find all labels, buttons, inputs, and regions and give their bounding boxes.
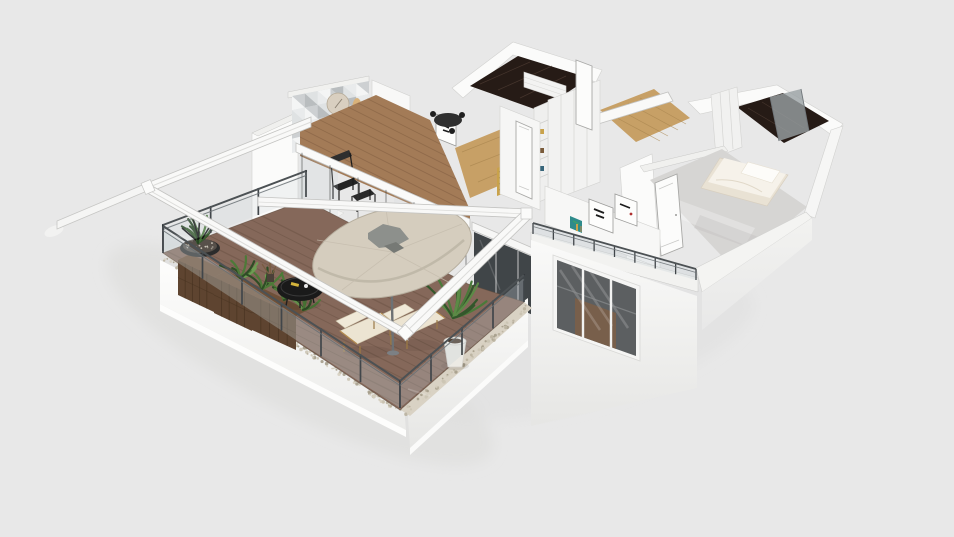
bottle-decor [580,226,582,232]
interior-door-hall [576,60,592,130]
bottle-decor [576,224,578,231]
parasol-base [387,351,399,356]
floorplan-render [0,0,954,537]
interior-door-living [516,121,532,199]
pergola-joint [521,208,532,219]
cup [304,284,308,288]
3d-viewport[interactable] [0,0,954,537]
bathroom-b-closet [711,87,742,157]
vase [267,274,274,282]
